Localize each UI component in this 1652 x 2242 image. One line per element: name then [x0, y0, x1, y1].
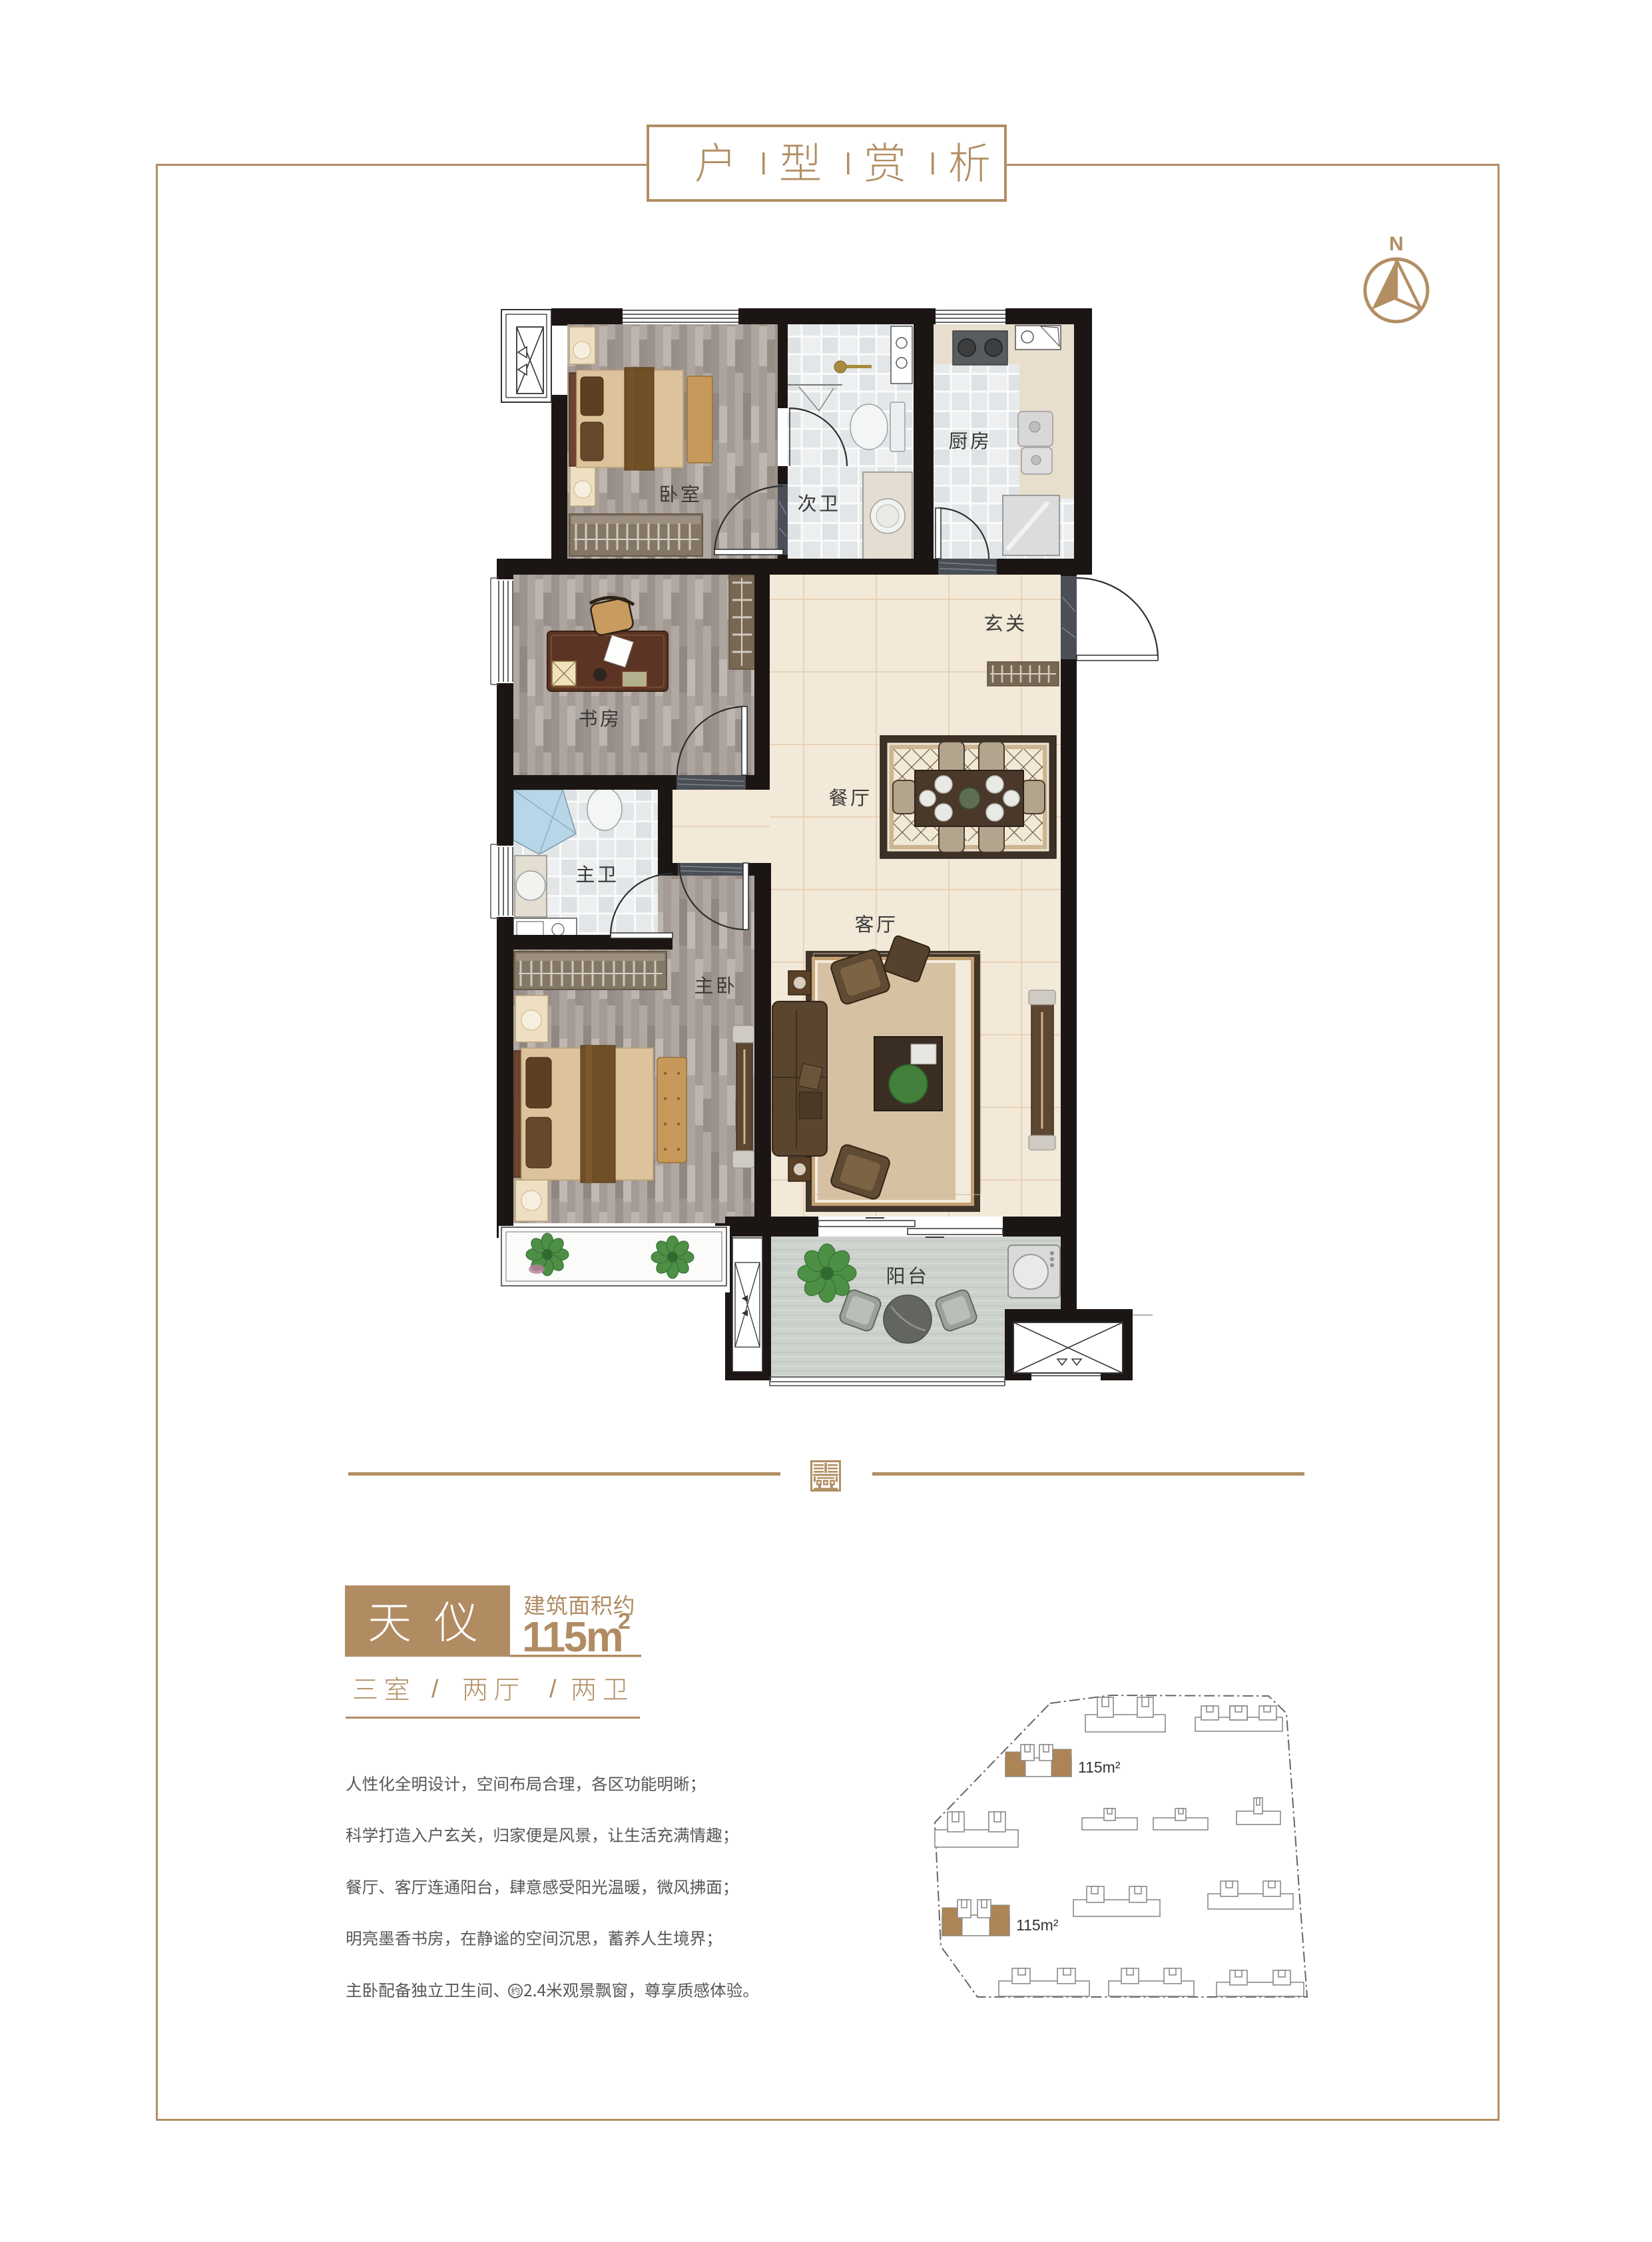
svg-text:115m: 115m: [522, 1613, 622, 1661]
svg-text:115m²: 115m²: [1016, 1916, 1059, 1934]
svg-text:N: N: [1389, 233, 1404, 255]
svg-text:/: /: [549, 1675, 557, 1703]
svg-text:115m²: 115m²: [1078, 1759, 1121, 1776]
svg-text:/: /: [431, 1675, 439, 1703]
svg-text:2: 2: [618, 1609, 631, 1634]
